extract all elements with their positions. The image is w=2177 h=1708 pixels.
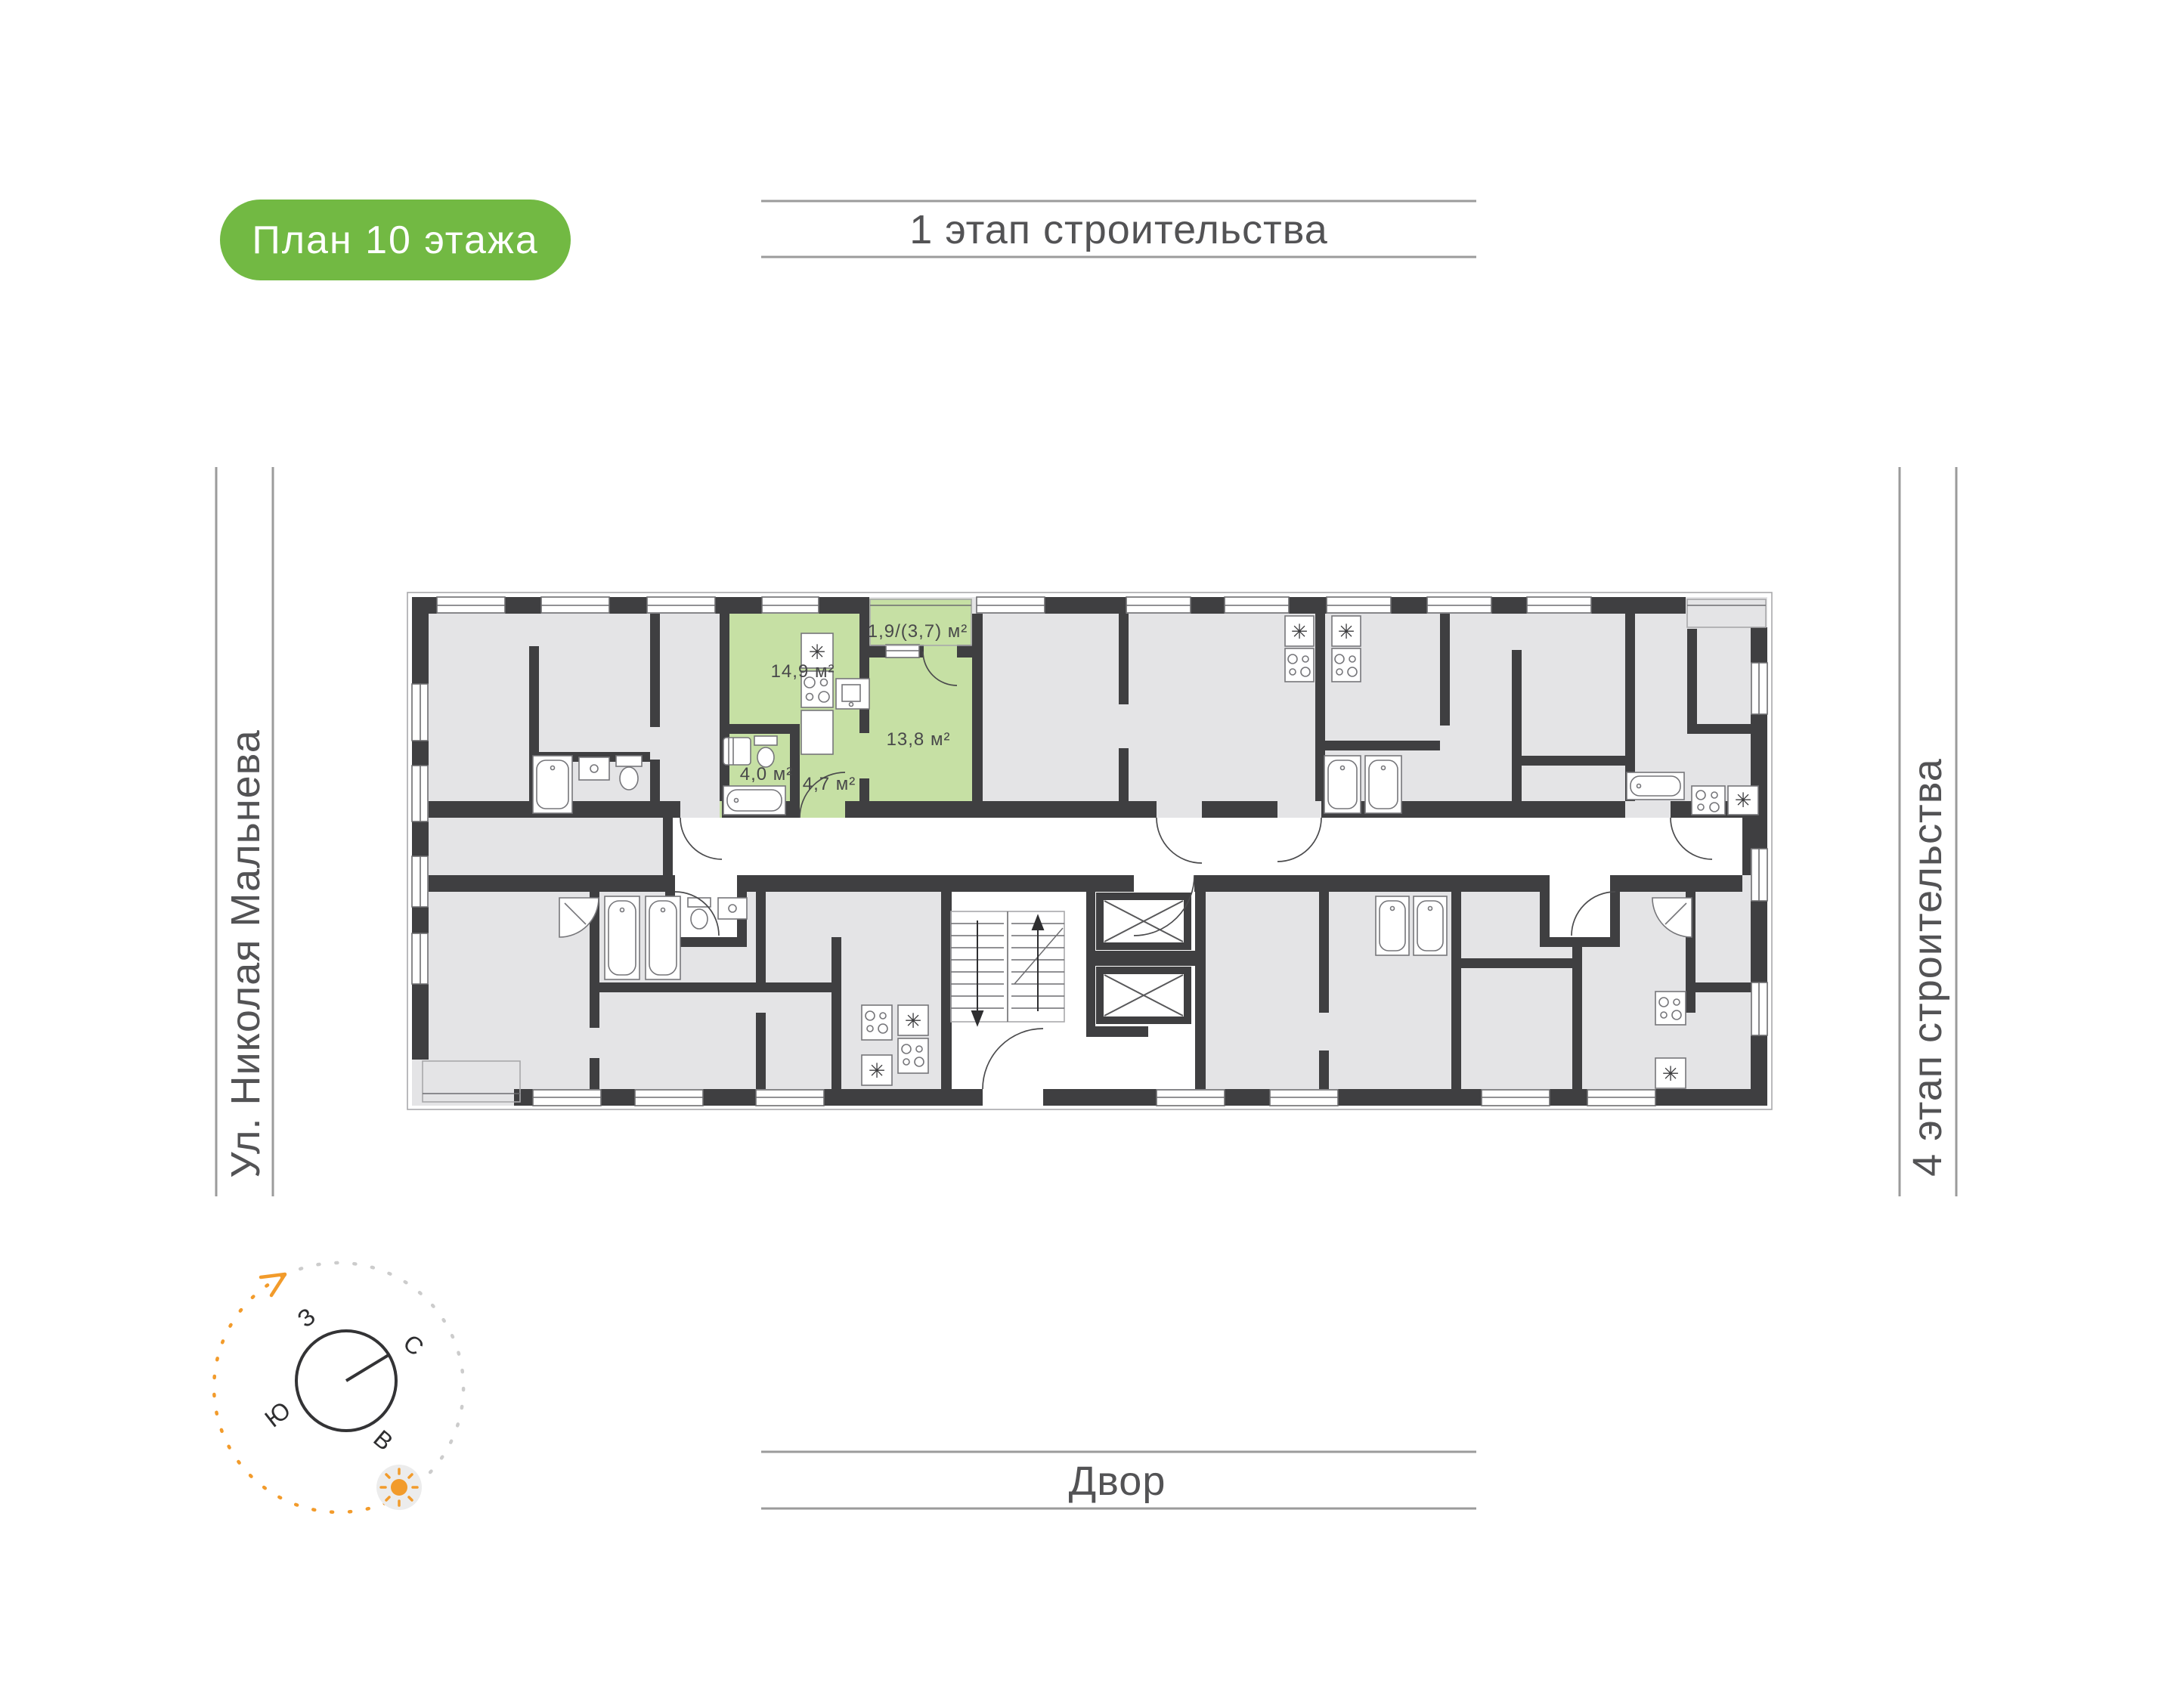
area-label-room: 13,8 м² (887, 729, 951, 750)
compass: З С Ю В (214, 1263, 463, 1512)
stove-icon (862, 1005, 892, 1040)
compass-label-south: Ю (259, 1396, 296, 1432)
left-banner: Ул. Николая Мальнева (216, 467, 273, 1196)
page-canvas: План 10 этажа 1 этап строительства Двор … (0, 0, 2177, 1708)
stove-icon (1285, 648, 1314, 682)
bathtub-icon (1376, 896, 1409, 955)
window (756, 1090, 824, 1106)
window (1427, 597, 1491, 613)
window (1482, 1090, 1550, 1106)
fridge-icon: ✳ (1332, 616, 1361, 646)
elevator-1 (1100, 896, 1188, 946)
window (1157, 1090, 1225, 1106)
bathtub-icon (605, 896, 639, 979)
entrance-opening (983, 1089, 1043, 1106)
corridor-jog-right (1550, 875, 1610, 937)
svg-text:✳: ✳ (809, 641, 826, 664)
stove-icon (898, 1038, 928, 1073)
sink-icon (579, 757, 609, 780)
area-label-kitchen-living: 14,9 м² (771, 661, 835, 682)
compass-arrow-icon (261, 1274, 285, 1295)
bathtub-icon (1627, 772, 1684, 800)
window (886, 645, 919, 658)
window (1751, 982, 1767, 1035)
fridge-icon: ✳ (1655, 1058, 1686, 1088)
stove-icon (1692, 786, 1725, 815)
floor-badge-label: План 10 этажа (252, 218, 538, 262)
compass-label-east: В (368, 1425, 398, 1456)
window (1126, 597, 1191, 613)
window (412, 766, 428, 822)
elevator-2 (1100, 970, 1188, 1020)
window (412, 933, 428, 984)
sun-icon (376, 1465, 422, 1510)
window (1587, 1090, 1655, 1106)
bottom-banner-label: Двор (1069, 1459, 1166, 1504)
area-label-balcony: 1,9/(3,7) м² (868, 621, 968, 642)
area-label-bathroom: 4,0 м² (740, 764, 794, 784)
window (437, 597, 505, 613)
window (977, 597, 1045, 613)
fridge-icon: ✳ (1728, 786, 1758, 815)
bottom-banner: Двор (761, 1452, 1476, 1508)
window (541, 597, 609, 613)
window (1270, 1090, 1338, 1106)
window (762, 597, 819, 613)
bathtub-icon (723, 786, 785, 815)
corridor (673, 818, 1742, 875)
window (1751, 663, 1767, 714)
sink-icon (718, 898, 747, 919)
window (412, 856, 428, 907)
fridge-icon: ✳ (1285, 616, 1314, 646)
floor-plan: ✳ ✳ ✳ ✳ ✳ ✳ ✳ (407, 593, 1772, 1109)
window (412, 684, 428, 741)
right-banner: 4 этап строительства (1900, 467, 1956, 1196)
stove-icon (1332, 648, 1361, 682)
window (1527, 597, 1591, 613)
fridge-icon: ✳ (898, 1005, 928, 1035)
svg-text:✳: ✳ (869, 1060, 886, 1082)
compass-label-north: С (398, 1329, 429, 1360)
svg-text:✳: ✳ (1338, 620, 1355, 643)
top-banner-label: 1 этап строительства (909, 207, 1328, 252)
right-banner-label: 4 этап строительства (1905, 758, 1950, 1177)
window (1751, 849, 1767, 901)
stove-icon (1655, 992, 1686, 1025)
window (533, 1090, 601, 1106)
bathtub-icon (1414, 896, 1447, 955)
floor-badge: План 10 этажа (220, 200, 571, 280)
window (635, 1090, 703, 1106)
washer-icon (723, 738, 751, 765)
left-banner-label: Ул. Николая Мальнева (223, 729, 268, 1177)
svg-text:✳: ✳ (1662, 1063, 1680, 1085)
svg-text:✳: ✳ (1291, 620, 1308, 643)
window (1327, 597, 1391, 613)
svg-text:✳: ✳ (905, 1010, 922, 1032)
bathtub-icon (1365, 756, 1401, 813)
window (647, 597, 715, 613)
fridge-icon: ✳ (862, 1055, 892, 1085)
top-banner: 1 этап строительства (761, 201, 1476, 257)
area-label-hallway: 4,7 м² (803, 774, 856, 794)
compass-label-west: З (293, 1302, 321, 1332)
svg-text:✳: ✳ (1735, 789, 1752, 812)
bathtub-icon (533, 756, 572, 813)
bathtub-icon (1324, 756, 1361, 813)
window (1225, 597, 1289, 613)
bathtub-icon (646, 896, 680, 979)
